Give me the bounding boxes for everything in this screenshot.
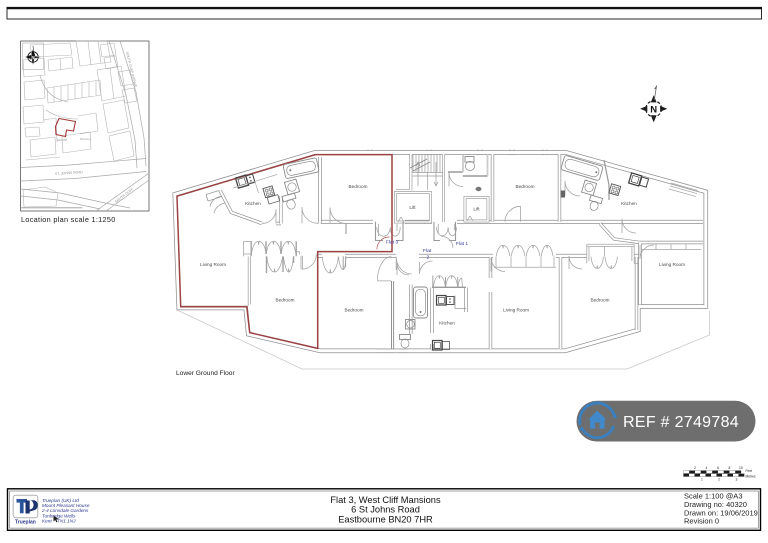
- svg-text:Bedroom: Bedroom: [515, 184, 534, 189]
- svg-text:2: 2: [694, 466, 696, 470]
- svg-text:Flat 3: Flat 3: [386, 240, 399, 246]
- svg-text:Mansions: Mansions: [80, 137, 92, 141]
- svg-text:Flat 1: Flat 1: [456, 241, 469, 247]
- svg-text:2: 2: [718, 478, 720, 482]
- svg-text:Bedroom: Bedroom: [344, 308, 363, 313]
- svg-text:Living Room: Living Room: [200, 262, 226, 267]
- svg-text:3: 3: [736, 478, 738, 482]
- svg-text:Westcliff: Westcliff: [57, 138, 67, 142]
- svg-text:1: 1: [701, 478, 703, 482]
- svg-text:6: 6: [717, 466, 719, 470]
- svg-text:Flat 3, West Cliff Mansions: Flat 3, West Cliff Mansions: [330, 495, 441, 505]
- svg-text:N: N: [650, 104, 657, 115]
- svg-text:Kent: Kent: [42, 519, 52, 524]
- svg-text:8: 8: [728, 466, 730, 470]
- svg-text:Eastbourne BN20 7HR: Eastbourne BN20 7HR: [338, 514, 433, 524]
- svg-text:10: 10: [739, 466, 743, 470]
- svg-text:REF # 2749784: REF # 2749784: [623, 414, 739, 431]
- svg-text:Bedroom: Bedroom: [590, 298, 609, 303]
- svg-text:2: 2: [427, 255, 430, 261]
- svg-text:TN1 1NJ: TN1 1NJ: [57, 519, 76, 524]
- svg-text:Living Room: Living Room: [503, 308, 529, 313]
- svg-text:6 St Johns Road: 6 St Johns Road: [351, 505, 420, 515]
- svg-text:Bedroom: Bedroom: [275, 298, 294, 303]
- svg-text:Trueplan: Trueplan: [15, 519, 36, 525]
- svg-text:Flat: Flat: [423, 248, 432, 254]
- svg-text:Bedroom: Bedroom: [348, 184, 367, 189]
- svg-text:Lower Ground Floor: Lower Ground Floor: [176, 370, 235, 377]
- svg-text:Location plan scale 1:1250: Location plan scale 1:1250: [21, 215, 116, 224]
- svg-text:Kitchen: Kitchen: [439, 321, 455, 326]
- svg-text:Lift: Lift: [409, 205, 416, 210]
- svg-text:Lift: Lift: [473, 207, 480, 212]
- svg-text:Kitchen: Kitchen: [621, 201, 637, 206]
- svg-text:Living Room: Living Room: [659, 262, 685, 267]
- svg-text:Kitchen: Kitchen: [245, 201, 261, 206]
- svg-text:4: 4: [705, 466, 707, 470]
- svg-text:Feet: Feet: [746, 469, 753, 473]
- svg-text:Metres: Metres: [746, 475, 756, 479]
- svg-text:Revision 0: Revision 0: [684, 517, 719, 526]
